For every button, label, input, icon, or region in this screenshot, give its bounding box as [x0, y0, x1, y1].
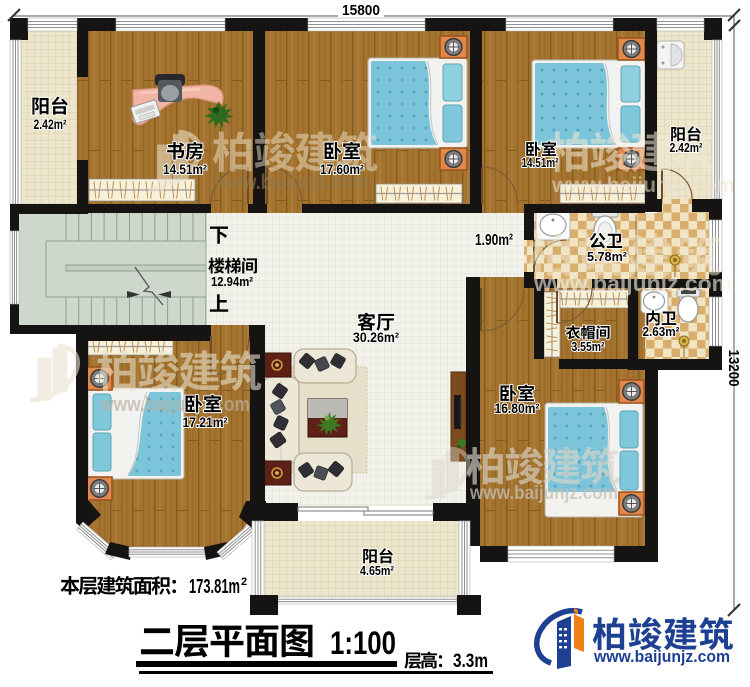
svg-text:1.90m²: 1.90m² — [475, 232, 513, 249]
svg-text:3.3m: 3.3m — [453, 651, 488, 672]
svg-text:3.55m²: 3.55m² — [572, 340, 605, 354]
svg-text:www.baijunjz.com: www.baijunjz.com — [469, 483, 618, 504]
svg-text:2.42m²: 2.42m² — [34, 117, 67, 132]
svg-text:17.21m²: 17.21m² — [183, 414, 228, 430]
svg-text:5.78m²: 5.78m² — [587, 249, 628, 264]
svg-text:2.42m²: 2.42m² — [670, 141, 703, 155]
svg-text:14.51m²: 14.51m² — [163, 161, 207, 177]
svg-text:www.baijunjz.com: www.baijunjz.com — [593, 647, 730, 666]
svg-text:2: 2 — [241, 576, 247, 588]
svg-text:30.26m²: 30.26m² — [353, 329, 399, 345]
svg-text:13200: 13200 — [725, 350, 742, 387]
svg-text:1:100: 1:100 — [330, 625, 396, 661]
svg-text:173.81m: 173.81m — [189, 576, 240, 598]
svg-text:www.baijunjz.com: www.baijunjz.com — [551, 174, 735, 197]
svg-text:12.94m²: 12.94m² — [211, 274, 254, 289]
svg-text:15800: 15800 — [342, 2, 380, 19]
svg-text:16.80m²: 16.80m² — [495, 400, 540, 416]
svg-text:www.baijunjz.com: www.baijunjz.com — [99, 394, 250, 416]
svg-text:14.51m²: 14.51m² — [522, 156, 559, 170]
svg-text:www.baijunjz.com: www.baijunjz.com — [533, 271, 732, 296]
svg-text:4.65m²: 4.65m² — [360, 563, 395, 578]
svg-text:2.63m²: 2.63m² — [643, 324, 681, 339]
svg-text:17.60m²: 17.60m² — [320, 161, 364, 177]
